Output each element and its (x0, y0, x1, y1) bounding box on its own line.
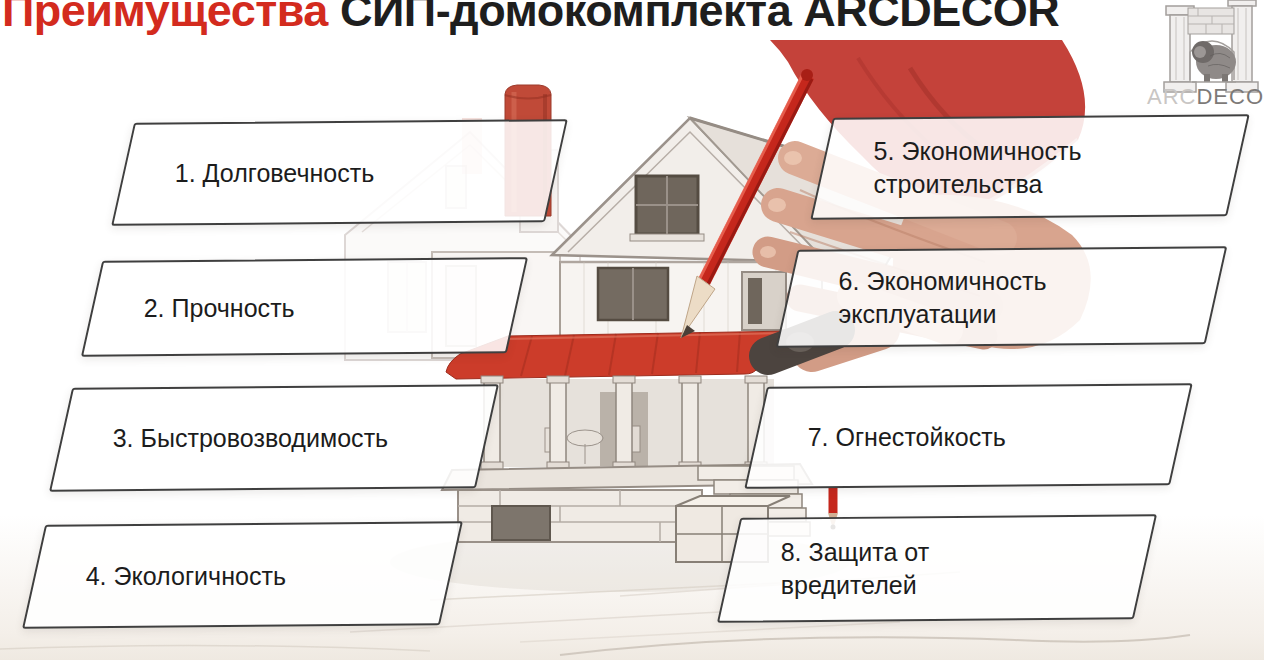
page-title: ПреимуществаСИП-домокомплекта ARCDECOR (2, 0, 1059, 37)
logo-emblem: ARCDECOR (1147, 0, 1264, 109)
advantage-box-1: 1. Долговечность (111, 119, 568, 226)
advantage-label-7: 7. Огнестойкость (758, 421, 1006, 453)
logo-text-arc: ARC (1147, 84, 1196, 109)
advantage-label-5: 5. Экономичность строительства (824, 135, 1155, 200)
advantage-label-6: 6. Экономичность эксплуатации (789, 265, 1120, 330)
advantage-label-1: 1. Долговечность (125, 157, 375, 189)
advantage-box-6: 6. Экономичность эксплуатации (776, 246, 1228, 348)
logo-text-decor: DECOR (1196, 84, 1264, 109)
advantage-box-2: 2. Прочность (81, 257, 528, 357)
advantage-box-4: 4. Экологичность (22, 521, 463, 629)
title-highlight: Преимущества (2, 0, 328, 36)
advantage-box-8: 8. Защита от вредителей (717, 514, 1157, 623)
advantage-label-3: 3. Быстровозводимость (63, 422, 389, 454)
logo-wordmark: ARCDECOR (1147, 84, 1264, 109)
advantage-label-8: 8. Защита от вредителей (731, 536, 1062, 601)
advantage-label-4: 4. Экологичность (36, 559, 286, 591)
advantage-box-3: 3. Быстровозводимость (49, 384, 499, 492)
advantage-box-7: 7. Огнестойкость (744, 383, 1192, 489)
advantage-box-5: 5. Экономичность строительства (810, 114, 1249, 220)
advantage-label-2: 2. Прочность (94, 292, 295, 324)
title-rest: СИП-домокомплекта ARCDECOR (340, 0, 1059, 36)
slide: ARCDECOR ПреимуществаСИП-домокомплекта A… (0, 0, 1264, 660)
